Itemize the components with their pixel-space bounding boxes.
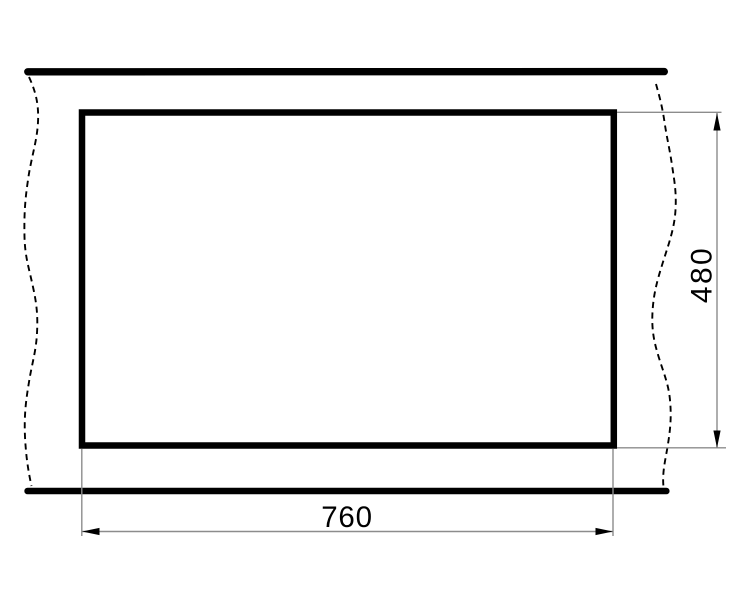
svg-text:480: 480: [686, 246, 719, 303]
svg-text:760: 760: [321, 501, 373, 534]
